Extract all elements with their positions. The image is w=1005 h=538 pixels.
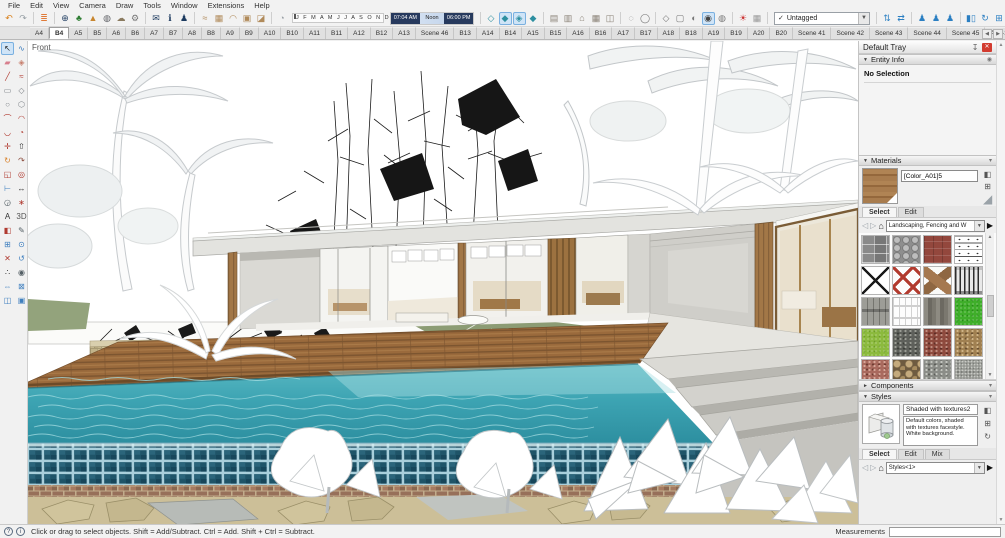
scene-tab[interactable]: A20 (748, 27, 771, 39)
materials-tabs: SelectEdit (859, 206, 996, 218)
tool-orbit[interactable]: ↺ (15, 252, 28, 265)
materials-options-icon[interactable]: ▾ (989, 157, 992, 164)
tool-zoom-window[interactable]: ⊞ (1, 238, 14, 251)
scene-tab[interactable]: A16 (567, 27, 590, 39)
menu-item[interactable]: Extensions (203, 1, 250, 10)
tool-axes[interactable]: ∗ (15, 196, 28, 209)
scroll-thumb[interactable] (987, 295, 994, 317)
materials-tab[interactable]: Edit (898, 207, 924, 217)
materials-title: Materials (871, 156, 901, 165)
update-style-icon[interactable]: ↻ (982, 431, 994, 442)
toolbar-separator (480, 12, 481, 24)
tag-dropdown-arrow-icon[interactable]: ▼ (858, 13, 869, 24)
materials-grid (859, 233, 985, 379)
toolbar-shadows-toggle[interactable]: ☀ (737, 12, 750, 25)
toolbar-separator (271, 12, 272, 24)
scene-tab[interactable]: B7 (164, 27, 183, 39)
expand-arrow-icon: ► (863, 383, 868, 389)
tool-select[interactable]: ↖ (1, 42, 14, 55)
scene-tab[interactable]: A17 (612, 27, 635, 39)
toolbar-style-wireframe[interactable]: ◇ (660, 12, 673, 25)
dropdown-arrow-icon: ▼ (974, 463, 984, 473)
toolbar-sandbox-drape[interactable]: ◪ (255, 12, 268, 25)
tool-lasso[interactable]: ∿ (15, 42, 28, 55)
tool-section-plane[interactable]: ◫ (1, 294, 14, 307)
tool-3d-text[interactable]: 3D (15, 210, 28, 223)
in-model-icon[interactable]: ⌂ (878, 221, 883, 231)
toolbar-add-terrain[interactable]: ▲ (87, 12, 100, 25)
entity-info-header[interactable]: ▼ Entity Info ◉ (859, 54, 996, 65)
tool-protractor[interactable]: ◶ (1, 196, 14, 209)
scene-tab[interactable]: A9 (221, 27, 240, 39)
material-wood-cross[interactable] (923, 266, 952, 295)
toolbar-separator (33, 12, 34, 24)
menu-bar: FileEditViewCameraDrawToolsWindowExtensi… (0, 0, 1005, 10)
toolbar-style-shaded-textures[interactable]: ◉ (702, 12, 715, 25)
toolbar-flip-along[interactable]: ⇅ (881, 12, 894, 25)
details-arrow-icon[interactable]: ▶ (987, 221, 993, 230)
collapse-arrow-icon: ▼ (863, 394, 868, 400)
toolbar-view-right[interactable]: ◆ (527, 12, 540, 25)
model-viewport[interactable]: Front (28, 41, 858, 524)
scene-tab[interactable]: A13 (393, 27, 416, 39)
tool-line[interactable]: ╱ (1, 70, 14, 83)
scene-tab[interactable]: A15 (522, 27, 545, 39)
toolbar-undo[interactable]: ↶ (3, 12, 16, 25)
tool-circle[interactable]: ○ (1, 98, 14, 111)
tray-title: Default Tray (863, 43, 906, 52)
status-geo-info-circle[interactable]: i (16, 527, 25, 536)
toolbar-sandbox-from-contours[interactable]: ≈ (199, 12, 212, 25)
toolbar-cloud[interactable]: ☁ (115, 12, 128, 25)
material-gravel-pink[interactable] (861, 359, 890, 379)
styles-tab[interactable]: Mix (925, 449, 950, 459)
toolbar-user-account[interactable]: ♟ (178, 12, 191, 25)
material-name-input[interactable] (901, 170, 978, 182)
toolbar-sandbox-stamp[interactable]: ▣ (241, 12, 254, 25)
toolbar-extension-settings-gear[interactable]: ⚙ (129, 12, 142, 25)
materials-preview-row: ◧ ⊞ ◢ (859, 166, 996, 206)
style-description: Default colors, shaded with textures fac… (903, 416, 978, 446)
tool-tape-measure[interactable]: ⊢ (1, 182, 14, 195)
menu-item[interactable]: View (48, 1, 74, 10)
dropdown-arrow-icon: ▼ (974, 221, 984, 231)
toolbar-place-person-large[interactable]: ♟ (944, 12, 957, 25)
toolbar-home-view[interactable]: ⌂ (576, 12, 589, 25)
tool-pie[interactable]: ◔ (15, 126, 28, 139)
toolbar-group-mid: ◇◆◈◆▤▥⌂▦◫◌◯◇▢◐◉◍☀▦ (477, 12, 771, 25)
tool-position-camera[interactable]: ✕ (1, 252, 14, 265)
styles-header[interactable]: ▼ Styles ▾ (859, 391, 996, 402)
styles-tabs: SelectEditMix (859, 448, 996, 460)
toolbar-view-front[interactable]: ◈ (513, 12, 526, 25)
toolbar-separator (960, 12, 961, 24)
tool-push-pull[interactable]: ⇧ (15, 140, 28, 153)
toolbar-place-person-medium[interactable]: ♟ (930, 12, 943, 25)
toolbar-add-location[interactable]: ⊕ (59, 12, 72, 25)
tool-offset[interactable]: ◎ (15, 168, 28, 181)
scene-tab[interactable]: A19 (703, 27, 726, 39)
sample-paint-icon[interactable]: ◢ (982, 194, 994, 204)
tool-walk[interactable]: ∴ (1, 266, 14, 279)
shadow-date-handle[interactable] (294, 14, 296, 19)
status-icons: ?i (4, 527, 28, 536)
material-wood-weathered[interactable] (923, 297, 952, 326)
scroll-up-icon[interactable]: ▲ (988, 234, 993, 240)
tool-eraser[interactable]: ▰ (1, 56, 14, 69)
collapse-arrow-icon: ▼ (863, 158, 868, 164)
tool-move[interactable]: ✛ (1, 140, 14, 153)
tray-pin-icon[interactable]: ↧ (970, 43, 980, 52)
shadow-time-noon: Noon (420, 13, 445, 24)
entity-info-options-icon[interactable]: ◉ (987, 56, 992, 63)
scene-tab[interactable]: A11 (304, 27, 326, 39)
scene-tab[interactable]: B11 (326, 27, 348, 39)
scene-tab-scroll-left-icon[interactable]: ◀ (982, 29, 992, 39)
scene-tab[interactable]: A4 (30, 27, 49, 39)
tool-dimension[interactable]: ↔ (15, 182, 28, 195)
tool-zoom[interactable]: ⊙ (15, 238, 28, 251)
styles-collection-dropdown[interactable]: Styles<1> ▼ (886, 462, 985, 474)
menu-item[interactable]: Window (166, 1, 203, 10)
tool-look-around[interactable]: ◉ (15, 266, 28, 279)
material-lattice-red[interactable] (892, 266, 921, 295)
scene-tab[interactable]: A6 (107, 27, 126, 39)
shadow-date-slider[interactable]: J F M A M J J A S O N D (292, 13, 384, 23)
scene-tab[interactable]: B10 (281, 27, 304, 39)
menu-item[interactable]: Draw (111, 1, 139, 10)
shadow-time-end: 06:00 PM (444, 13, 473, 24)
material-metal-fence[interactable] (954, 266, 983, 295)
material-cobblestone[interactable] (892, 235, 921, 264)
tool-make-component[interactable]: ◈ (15, 56, 28, 69)
toolbar-style-xray[interactable]: ◌ (625, 12, 638, 25)
style-thumbnail[interactable] (862, 404, 900, 444)
toolbar-sandbox-smoove[interactable]: ◠ (227, 12, 240, 25)
create-material-icon[interactable]: ⊞ (982, 181, 994, 191)
materials-tab[interactable]: Select (862, 207, 897, 217)
scene-tab-scroll-right-icon[interactable]: ▶ (993, 29, 1003, 39)
tag-dropdown[interactable]: ✓ Untagged ▼ (774, 12, 870, 25)
styles-nav-row: ◁ ▷ ⌂ Styles<1> ▼ ▶ (859, 460, 996, 475)
styles-title: Styles (871, 392, 891, 401)
scene-tabs-bar: A4B4A5B5A6B6A7B7A8B8A9B9A10B10A11B11A12B… (0, 27, 1005, 40)
scene-tab[interactable]: B14 (500, 27, 523, 39)
tool-freehand[interactable]: ≈ (15, 70, 28, 83)
scene-tab[interactable]: A5 (69, 27, 88, 39)
menu-item[interactable]: Camera (74, 1, 111, 10)
material-barbed-wire[interactable] (954, 235, 983, 264)
style-name[interactable]: Shaded with textures2 (903, 404, 978, 415)
tool-two-point-arc[interactable]: ◠ (15, 112, 28, 125)
create-style-icon[interactable]: ⊞ (982, 418, 994, 429)
material-wood-gate[interactable] (861, 297, 890, 326)
components-title: Components (871, 381, 914, 390)
tray-empty-space (859, 475, 996, 524)
toolbar-model-info[interactable]: ℹ (164, 12, 177, 25)
components-options-icon[interactable]: ▾ (989, 382, 992, 389)
scene-tab[interactable]: B20 (770, 27, 793, 39)
details-arrow-icon[interactable]: ▶ (987, 463, 993, 472)
entity-info-title: Entity Info (871, 55, 904, 64)
status-bar: ?i Click or drag to select objects. Shif… (0, 524, 1005, 538)
entity-info-body: No Selection (859, 65, 996, 155)
menu-item[interactable]: Edit (25, 1, 48, 10)
toolbar-component-stats[interactable]: ▮▯ (965, 12, 978, 25)
material-preview-thumbnail[interactable] (862, 168, 898, 204)
material-wire-fence[interactable] (861, 266, 890, 295)
scene-tab[interactable]: B6 (126, 27, 145, 39)
toolbar-shadow-settings[interactable]: ▦ (751, 12, 764, 25)
toolbar-print-scene[interactable]: ▦ (590, 12, 603, 25)
toolbar-separator (655, 12, 656, 24)
material-grass-light[interactable] (861, 328, 890, 357)
scene-tab[interactable]: Scene 43 (870, 27, 908, 39)
tool-rotated-rectangle[interactable]: ◇ (15, 84, 28, 97)
back-icon[interactable]: ◁ (862, 221, 868, 230)
scene-tab[interactable]: B8 (202, 27, 221, 39)
toolbar-separator (767, 12, 768, 24)
materials-grid-wrap: ▲ ▼ (859, 233, 996, 380)
toolbar-component-sync[interactable]: ↻ (979, 12, 992, 25)
menu-item[interactable]: File (3, 1, 25, 10)
scene-tab[interactable]: B15 (545, 27, 568, 39)
material-brick-red[interactable] (923, 235, 952, 264)
styles-collection-value: Styles<1> (889, 465, 916, 471)
scene-tab[interactable]: Scene 45 (947, 27, 985, 39)
toolbar-send-mail[interactable]: ✉ (150, 12, 163, 25)
components-header[interactable]: ► Components ▾ (859, 380, 996, 391)
toolbar-separator (732, 12, 733, 24)
camera-view-label: Front (32, 43, 51, 52)
tool-pan[interactable]: ⇔ (1, 280, 14, 293)
scene-tab[interactable]: B13 (454, 27, 477, 39)
toolbar-separator (620, 12, 621, 24)
tag-check-icon: ✓ (778, 14, 784, 22)
materials-scrollbar[interactable]: ▲ ▼ (985, 233, 994, 379)
styles-tab[interactable]: Select (862, 449, 897, 459)
scene-tab[interactable]: B9 (240, 27, 259, 39)
scene-tab[interactable]: B18 (680, 27, 703, 39)
status-help-circle[interactable]: ? (4, 527, 13, 536)
tool-sample-paint[interactable]: ✎ (15, 224, 28, 237)
toolbar-place-person-small[interactable]: ♟ (916, 12, 929, 25)
tool-zoom-extents[interactable]: ⊠ (15, 280, 28, 293)
scene-tab[interactable]: B12 (371, 27, 394, 39)
shadow-time-start: 07:04 AM (391, 13, 420, 24)
entity-info-status: No Selection (864, 69, 991, 83)
styles-tab[interactable]: Edit (898, 449, 924, 459)
material-gravel-brown[interactable] (954, 328, 983, 357)
tool-follow-me[interactable]: ↷ (15, 154, 28, 167)
toolbar-soften-edges-sphere[interactable]: ◔ (276, 12, 289, 25)
tool-text[interactable]: A (1, 210, 14, 223)
forward-icon[interactable]: ▷ (870, 221, 876, 230)
scroll-up-icon[interactable]: ▲ (999, 42, 1004, 48)
tool-arc[interactable]: ⌒ (1, 112, 14, 125)
material-gravel-fine[interactable] (954, 359, 983, 379)
in-model-icon[interactable]: ⌂ (878, 463, 883, 473)
material-pavers-gray[interactable] (861, 235, 890, 264)
scene-tab[interactable]: B16 (590, 27, 613, 39)
tool-three-point-arc[interactable]: ◡ (1, 126, 14, 139)
toolbar-style-back-edges[interactable]: ◯ (639, 12, 652, 25)
sketchup-window: FileEditViewCameraDrawToolsWindowExtensi… (0, 0, 1005, 538)
toolbar-redo[interactable]: ↷ (17, 12, 30, 25)
toolbar-style-monochrome[interactable]: ◍ (716, 12, 729, 25)
toolbar-layers-stack[interactable]: ≣ (38, 12, 51, 25)
tag-dropdown-value: Untagged (787, 15, 817, 22)
materials-collection-dropdown[interactable]: Landscaping, Fencing and W ▼ (886, 220, 985, 232)
toolbar-style-hidden-line[interactable]: ▢ (674, 12, 687, 25)
scene-tab[interactable]: Scene 44 (908, 27, 946, 39)
toolbar-style-shaded[interactable]: ◐ (688, 12, 701, 25)
toolbar-move-axes[interactable]: ⇄ (895, 12, 908, 25)
materials-nav-row: ◁ ▷ ⌂ Landscaping, Fencing and W ▼ ▶ (859, 218, 996, 233)
default-tray: Default Tray ↧ ✕ ▼ Entity Info ◉ No Sele… (858, 41, 1005, 524)
materials-header[interactable]: ▼ Materials ▾ (859, 155, 996, 166)
toolbar-view-iso[interactable]: ◇ (485, 12, 498, 25)
material-picket-fence[interactable] (892, 297, 921, 326)
toolbar-sandbox-from-scratch[interactable]: ▦ (213, 12, 226, 25)
forward-icon[interactable]: ▷ (870, 463, 876, 472)
tool-paint-bucket[interactable]: ◧ (1, 224, 14, 237)
scene-tab[interactable]: B4 (49, 27, 69, 39)
measurements-input[interactable] (889, 527, 1001, 537)
materials-collection-value: Landscaping, Fencing and W (889, 223, 967, 229)
tray-close-icon[interactable]: ✕ (982, 43, 992, 52)
material-gravel-red[interactable] (923, 328, 952, 357)
toolbar-export-image[interactable]: ◫ (604, 12, 617, 25)
toolbar-get-models-tree[interactable]: ♣ (73, 12, 86, 25)
scene-tab[interactable]: B17 (635, 27, 658, 39)
scroll-down-icon[interactable]: ▼ (999, 517, 1004, 523)
toolbar-separator (54, 12, 55, 24)
toolbar-group-left: ↶↷≣⊕♣▲◍☁⚙✉ℹ♟≈▦◠▣◪◔ (2, 12, 289, 25)
model-scene (28, 41, 858, 524)
material-gravel-dark[interactable] (892, 328, 921, 357)
back-icon[interactable]: ◁ (862, 463, 868, 472)
toolbar-group-right: ⇅⇄♟♟♟▮▯↻⊞◨ (873, 12, 1005, 25)
toolbar-photo-textures[interactable]: ◍ (101, 12, 114, 25)
large-tool-set: ↖∿▰◈╱≈▭◇○⬡⌒◠◡◔✛⇧↻↷◱◎⊢↔◶∗A3D◧✎⊞⊙✕↺∴◉⇔⊠◫▣ (0, 41, 28, 524)
scene-tab[interactable]: A14 (477, 27, 500, 39)
scene-tab[interactable]: B19 (725, 27, 748, 39)
material-gravel-gray[interactable] (923, 359, 952, 379)
toolbar-separator (911, 12, 912, 24)
menu-item[interactable]: Tools (138, 1, 166, 10)
scene-tab[interactable]: A7 (145, 27, 164, 39)
tool-rotate[interactable]: ↻ (1, 154, 14, 167)
measurements-label: Measurements (835, 527, 885, 536)
scene-tab[interactable]: A10 (259, 27, 282, 39)
tool-rectangle[interactable]: ▭ (1, 84, 14, 97)
scene-tab[interactable]: Scene 42 (831, 27, 869, 39)
toolbar-share-model[interactable]: ▤ (548, 12, 561, 25)
scene-tab[interactable]: A12 (348, 27, 371, 39)
tray-scrollbar[interactable]: ▲ ▼ (996, 41, 1005, 524)
scene-tab-scroll: ◀ ▶ (982, 29, 1005, 39)
material-grass-green[interactable] (954, 297, 983, 326)
tool-section-display[interactable]: ▣ (15, 294, 28, 307)
material-river-rock[interactable] (892, 359, 921, 379)
shadow-time-slider[interactable]: 07:04 AM Noon 06:00 PM (390, 12, 474, 25)
scene-tab[interactable]: A8 (183, 27, 202, 39)
scene-tab[interactable]: A18 (658, 27, 681, 39)
scene-tab[interactable]: B5 (88, 27, 107, 39)
toolbar-separator (543, 12, 544, 24)
toolbar-separator (194, 12, 195, 24)
styles-body: Shaded with textures2 Default colors, sh… (859, 402, 996, 448)
tray-title-bar[interactable]: Default Tray ↧ ✕ (859, 41, 996, 54)
secondary-pane-icon[interactable]: ◧ (982, 405, 994, 416)
status-hint: Click or drag to select objects. Shift =… (31, 527, 315, 536)
toolbar-view-top[interactable]: ◆ (499, 12, 512, 25)
toolbar-download-models[interactable]: ▥ (562, 12, 575, 25)
styles-options-icon[interactable]: ▾ (989, 393, 992, 400)
menu-item[interactable]: Help (249, 1, 274, 10)
scene-tabs: A4B4A5B5A6B6A7B7A8B8A9B9A10B10A11B11A12B… (30, 27, 982, 39)
toolbar-component-grid[interactable]: ⊞ (993, 12, 1005, 25)
shadow-months-label: J F M A M J J A S O N D (296, 15, 380, 21)
secondary-pane-icon[interactable]: ◧ (982, 169, 994, 179)
scroll-down-icon[interactable]: ▼ (988, 372, 993, 378)
tool-scale[interactable]: ◱ (1, 168, 14, 181)
collapse-arrow-icon: ▼ (863, 57, 868, 63)
scene-tab[interactable]: Scene 41 (793, 27, 831, 39)
toolbar-separator (145, 12, 146, 24)
toolbar-separator (876, 12, 877, 24)
scene-tab[interactable]: Scene 46 (416, 27, 454, 39)
main-toolbar: ↶↷≣⊕♣▲◍☁⚙✉ℹ♟≈▦◠▣◪◔ J F M A M J J A S O N… (0, 10, 1005, 27)
tool-polygon[interactable]: ⬡ (15, 98, 28, 111)
